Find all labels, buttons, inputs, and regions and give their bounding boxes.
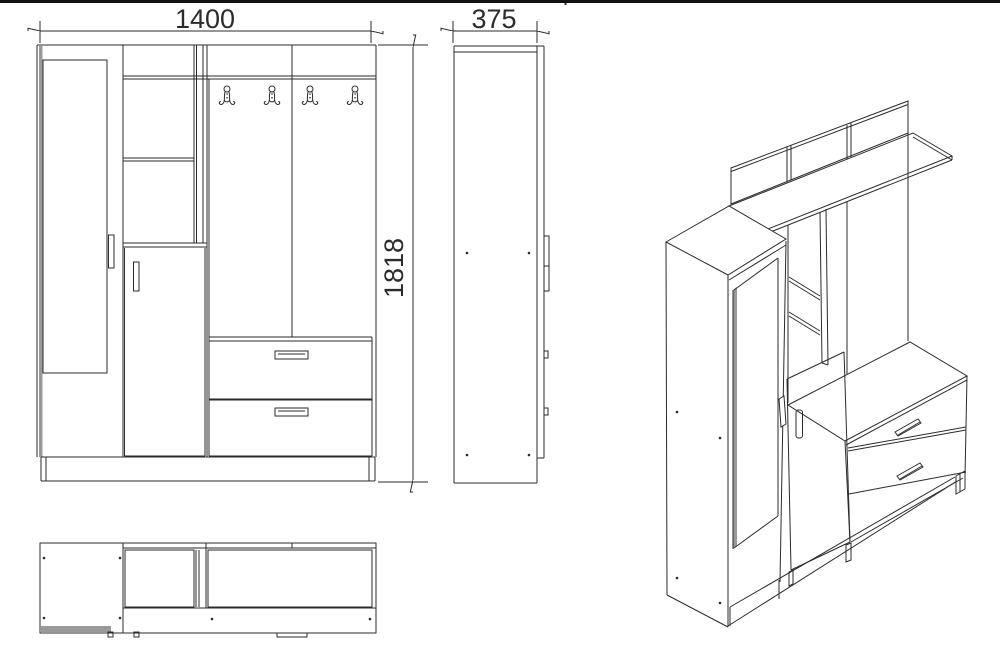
height-dimension-label: 1818 bbox=[379, 238, 409, 298]
screw-cap-dot bbox=[369, 618, 372, 621]
front-view: 1400 1818 bbox=[37, 4, 428, 482]
screw-cap-dot bbox=[119, 617, 122, 620]
screw-cap-dot bbox=[466, 454, 469, 457]
screw-cap-dot bbox=[43, 557, 46, 560]
side-view: 375 bbox=[453, 4, 549, 483]
foot bbox=[846, 543, 851, 562]
iso-shelf-column bbox=[789, 209, 828, 365]
height-dimension: 1818 bbox=[378, 45, 428, 482]
screw-cap-dot bbox=[719, 602, 722, 605]
screw-cap-dot bbox=[528, 252, 531, 255]
screw-cap-dot bbox=[676, 411, 679, 414]
door-handle bbox=[134, 262, 140, 291]
screw-cap-dot bbox=[119, 557, 122, 560]
drawer-stack-front bbox=[209, 337, 372, 456]
screw-cap-dot bbox=[676, 577, 679, 580]
screw-cap-dot bbox=[528, 454, 531, 457]
width-dimension-label: 1400 bbox=[175, 4, 235, 34]
shelf-column-front bbox=[123, 45, 376, 247]
drawer-handle bbox=[275, 408, 308, 416]
depth-dimension-label: 375 bbox=[471, 4, 516, 34]
mirror-door-top-edge bbox=[41, 626, 111, 632]
plinth-front bbox=[41, 457, 375, 481]
hook-panel-front bbox=[207, 45, 292, 457]
screw-cap-dot bbox=[719, 437, 722, 440]
hook-row bbox=[219, 86, 362, 104]
drawer-handle-top bbox=[277, 633, 307, 637]
side-view-screw-dots bbox=[466, 252, 531, 457]
iso-view bbox=[666, 101, 967, 627]
door-handle bbox=[109, 235, 115, 268]
technical-drawing-canvas: 1400 1818 bbox=[0, 0, 1000, 661]
top-view bbox=[40, 543, 376, 637]
coat-hook-icon bbox=[264, 86, 279, 104]
iso-wardrobe bbox=[666, 206, 786, 627]
drawing-sheet: 1400 1818 bbox=[0, 0, 1000, 661]
storage-door-front bbox=[125, 248, 206, 456]
top-view-screw-dots bbox=[43, 557, 372, 621]
depth-dimension: 375 bbox=[453, 4, 537, 43]
drawer-handle-iso bbox=[897, 463, 923, 480]
sheet-top-border bbox=[0, 0, 1000, 3]
coat-hook-icon bbox=[347, 86, 362, 104]
door-handle-iso bbox=[796, 410, 803, 438]
iso-drawer-chest bbox=[788, 342, 967, 542]
side-panel-edge-shading bbox=[39, 46, 43, 457]
width-dimension: 1400 bbox=[40, 4, 371, 43]
drawer-handle-iso bbox=[895, 419, 921, 436]
mirror-door-front bbox=[43, 60, 114, 373]
coat-hook-icon bbox=[219, 86, 234, 104]
screw-cap-dot bbox=[211, 618, 214, 621]
mirror-edge-shading bbox=[733, 287, 737, 549]
screw-cap-dot bbox=[466, 252, 469, 255]
drawer-handle bbox=[275, 351, 308, 359]
coat-hook-icon bbox=[302, 86, 317, 104]
side-view-handle-edges bbox=[544, 236, 549, 415]
screw-cap-dot bbox=[43, 617, 46, 620]
